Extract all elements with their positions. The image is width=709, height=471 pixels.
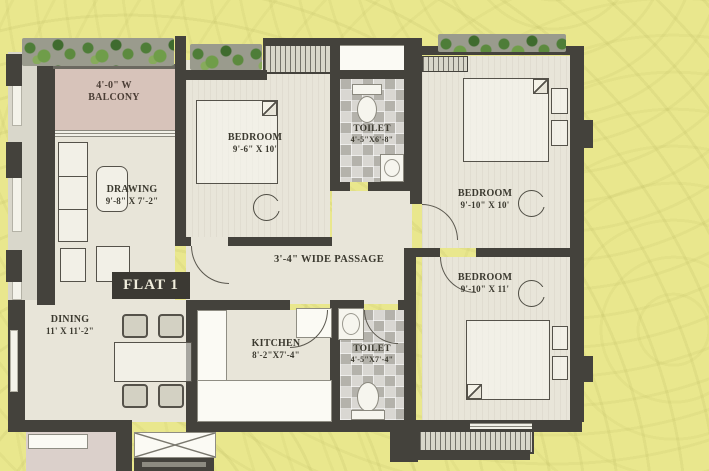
chair-icon [122, 314, 148, 338]
wall-segment [404, 248, 416, 422]
wall-segment [175, 36, 186, 246]
dining-table-icon [114, 342, 192, 382]
wc-tank-icon [352, 84, 382, 95]
bed-fold-icon [467, 384, 482, 399]
balcony-label: 4'-0" W BALCONY [58, 80, 170, 104]
room-dims-text: 9'-10" X 11' [432, 284, 538, 295]
room-name-text: TOILET [338, 124, 406, 135]
wall-segment [476, 248, 582, 257]
stair-inner [142, 462, 206, 467]
floor-plan: 4'-0" W BALCONY DRAWING 9'-8" X 7'-2" DI… [0, 0, 709, 471]
balcony-name-text: BALCONY [58, 92, 170, 104]
ledge-edge [418, 450, 530, 460]
wall-segment [340, 70, 404, 79]
window [12, 170, 22, 232]
stair-block [134, 458, 214, 471]
room-name-text: BEDROOM [202, 132, 308, 144]
bedside-table-icon [552, 326, 568, 350]
room-dims-text: 9'-10" X 10' [432, 200, 538, 211]
wall-segment [330, 182, 350, 191]
shaft-box [134, 432, 216, 458]
fan-icon [253, 194, 280, 221]
washbasin-icon [338, 308, 364, 340]
wardrobe-hatch [263, 44, 332, 74]
wall-segment [175, 70, 267, 80]
window [470, 423, 532, 429]
bedroom-bottom-label: BEDROOM 9'-10" X 11' [432, 272, 538, 295]
wall-stub [584, 120, 593, 148]
wc-icon [357, 96, 377, 123]
bedside-table-icon [551, 88, 568, 114]
chair-icon [158, 314, 184, 338]
planter-box [190, 44, 262, 70]
room-dims-text: 8'-2"X7'-4" [220, 350, 332, 361]
wall-segment [570, 46, 584, 422]
wall-segment [186, 300, 290, 310]
room-dims-text: 9'-8" X 7'-2" [82, 196, 182, 207]
wall-segment [228, 237, 332, 246]
wall-stub [390, 432, 418, 462]
planter-box [438, 34, 566, 52]
room-dims-text: 11' X 11'-2" [28, 326, 112, 337]
wall-segment [8, 420, 132, 432]
toilet-top-label: TOILET 4'-5"X6'-8" [338, 124, 406, 145]
bedside-table-icon [551, 120, 568, 146]
wall-segment [330, 38, 340, 190]
side-table-icon [60, 248, 86, 282]
room-dims-text: 4'-5"X6'-8" [338, 135, 406, 145]
room-name-text: TOILET [334, 344, 410, 355]
room-name-text: DINING [28, 314, 112, 326]
bed-fold-icon [262, 101, 277, 116]
planter-box [22, 38, 174, 66]
drawing-room-label: DRAWING 9'-8" X 7'-2" [82, 184, 182, 207]
duct-box [334, 45, 406, 72]
room-dims-text: 4'-5"X7'-4" [334, 355, 410, 365]
passage-label: 3'-4" WIDE PASSAGE [244, 254, 414, 265]
room-name-text: BEDROOM [432, 272, 538, 284]
wardrobe-hatch [422, 56, 468, 72]
chair-icon [122, 384, 148, 408]
wall-segment [37, 62, 55, 305]
wall-stub [584, 356, 593, 382]
flat-badge: FLAT 1 [112, 272, 190, 299]
passage-jog-floor [332, 191, 412, 248]
wall-segment [398, 300, 416, 310]
wc-icon [357, 382, 379, 412]
bed-fold-icon [533, 79, 548, 94]
wc-tank-icon [351, 410, 385, 420]
chair-icon [158, 384, 184, 408]
wall-stub [116, 432, 132, 471]
wall-segment [175, 237, 191, 246]
wall-stub [6, 54, 22, 86]
x-cross-icon [135, 433, 215, 457]
sliding-door [55, 130, 175, 137]
washbasin-icon [380, 154, 404, 182]
kitchen-label: KITCHEN 8'-2"X7'-4" [220, 338, 332, 361]
room-name-text: BEDROOM [432, 188, 538, 200]
toilet-bottom-label: TOILET 4'-5"X7'-4" [334, 344, 410, 365]
wall-stub [6, 250, 22, 282]
wall-stub [6, 142, 22, 178]
room-name-text: KITCHEN [220, 338, 332, 350]
wall-segment [368, 182, 416, 191]
bedside-table-icon [552, 356, 568, 380]
bedroom-right-label: BEDROOM 9'-10" X 10' [432, 188, 538, 211]
bedroom-top-label: BEDROOM 9'-6" X 10' [202, 132, 308, 155]
wall-segment [410, 38, 422, 204]
balcony-width-text: 4'-0" W [58, 80, 170, 92]
kitchen-counter [197, 380, 332, 422]
room-name-text: DRAWING [82, 184, 182, 196]
window [10, 330, 18, 392]
dining-room-label: DINING 11' X 11'-2" [28, 314, 112, 337]
lower-duct [28, 434, 88, 449]
room-dims-text: 9'-6" X 10' [202, 144, 308, 155]
